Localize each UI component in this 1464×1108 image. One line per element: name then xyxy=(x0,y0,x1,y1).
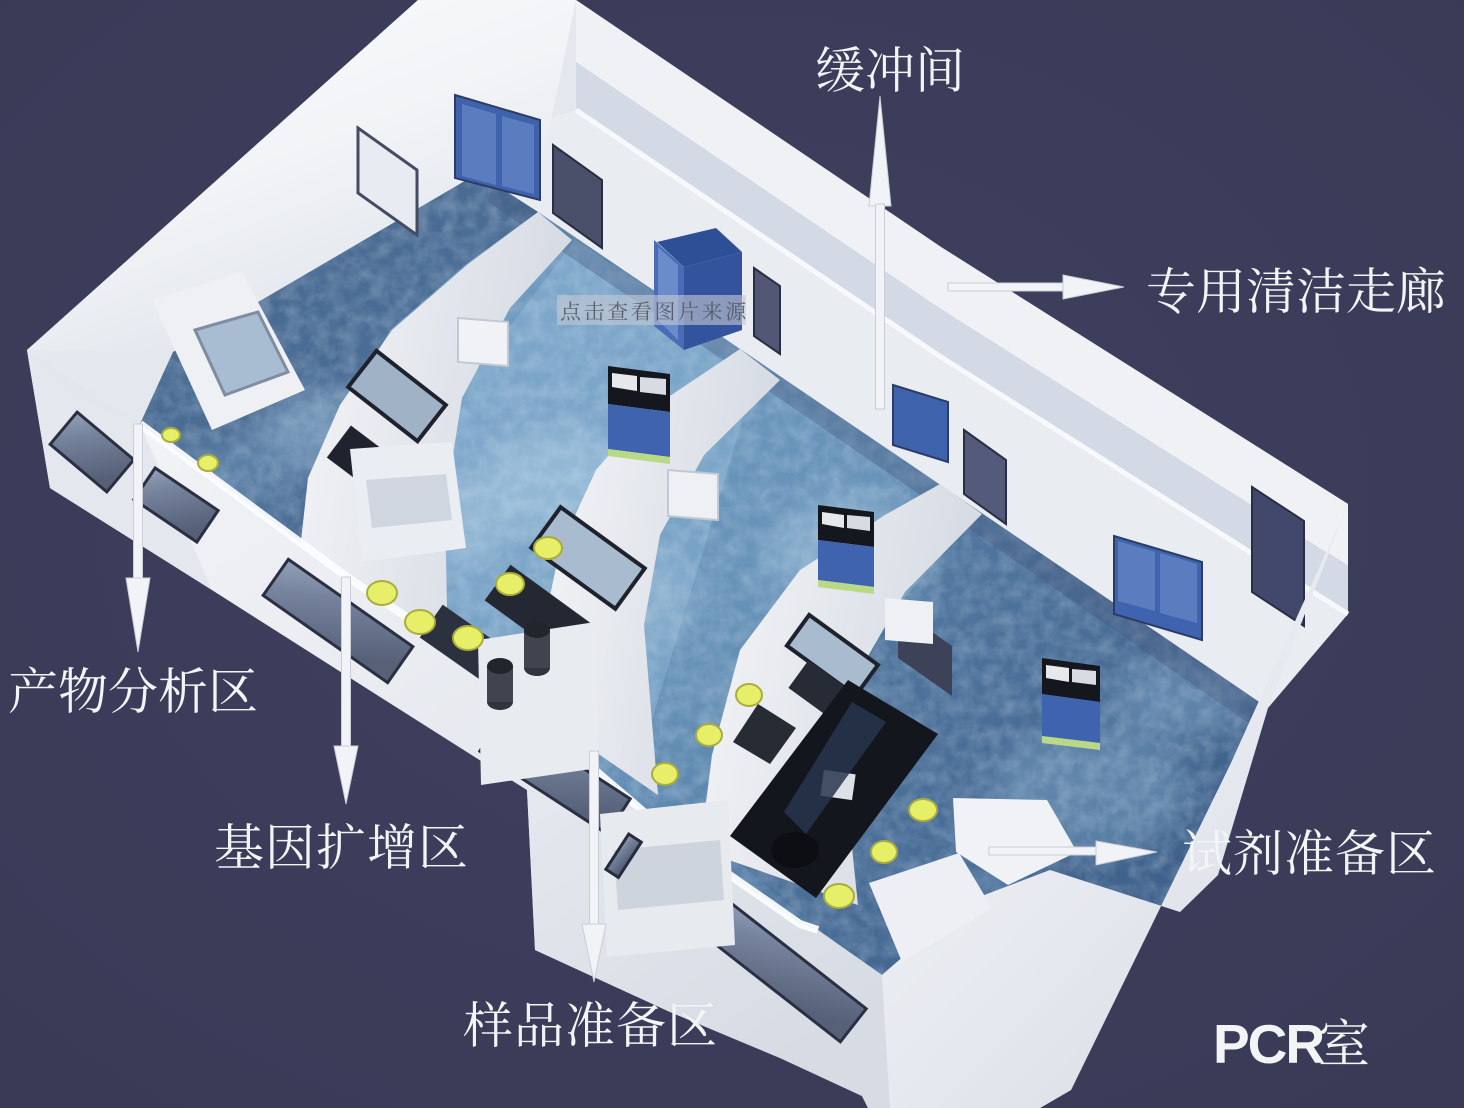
svg-text:PCR: PCR xyxy=(1213,1013,1324,1075)
